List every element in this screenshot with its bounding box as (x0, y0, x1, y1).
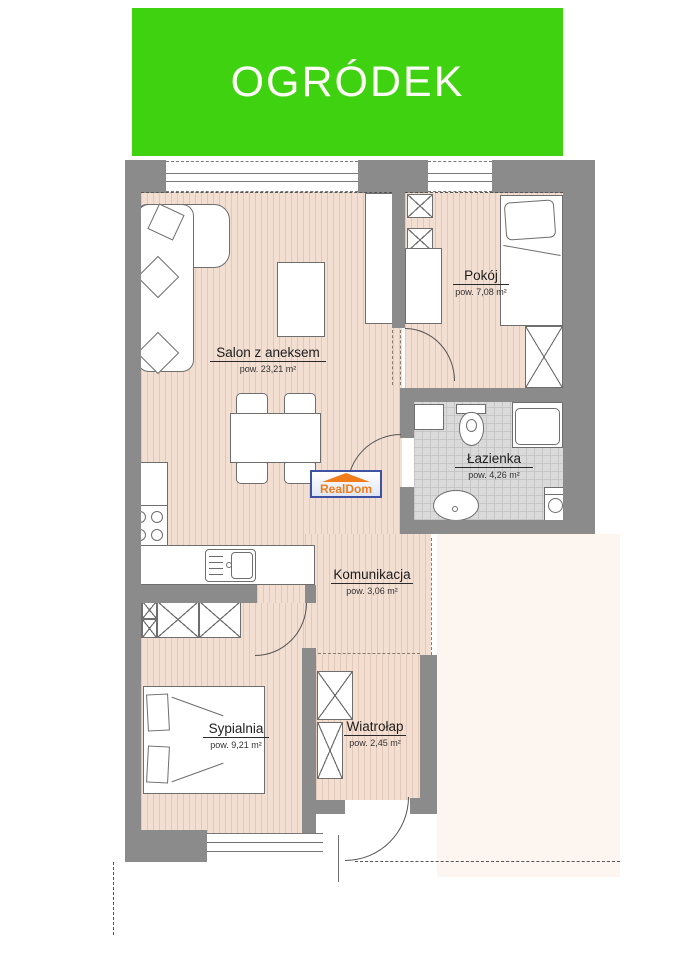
label-divider (455, 467, 533, 468)
window-sypialnia (207, 833, 323, 852)
wall-top-middle (358, 160, 428, 193)
room-label-pokoj: Pokój pow. 7,08 m² (406, 268, 556, 297)
door-arc-entrance (345, 797, 409, 861)
dining-chair (236, 393, 268, 415)
room-name: Łazienka (419, 451, 569, 466)
floor-plan-page: OGRÓDEK (0, 0, 678, 960)
room-label-salon: Salon z aneksem pow. 23,21 m² (193, 345, 343, 374)
boundary-komunikacja-right (431, 538, 432, 655)
room-name: Pokój (406, 268, 556, 283)
room-area: pow. 23,21 m² (193, 364, 343, 374)
realdom-logo: RealDom (310, 470, 382, 498)
garden-boundary-vertical (113, 862, 114, 935)
opening-salon-korytarz (392, 330, 401, 385)
dining-table (230, 413, 321, 463)
wall-lazienka-left-upper (400, 388, 414, 438)
boundary-komunikacja-wiatrolap (318, 653, 420, 654)
wardrobe (525, 326, 563, 388)
room-name: Komunikacja (297, 567, 447, 582)
room-area: pow. 2,45 m² (300, 738, 450, 748)
wall-salon-pokoj (392, 193, 405, 328)
wall-lazienka-top (400, 388, 595, 402)
bathtub-inner (515, 408, 560, 445)
wardrobe-cell (142, 619, 157, 638)
wall-entrance-left (302, 800, 345, 814)
room-area: pow. 9,21 m² (161, 740, 311, 750)
outside-area (437, 534, 620, 877)
room-label-lazienka: Łazienka pow. 4,26 m² (419, 451, 569, 480)
window-frame (166, 173, 358, 182)
boundary-pokoj-window (405, 192, 563, 193)
sink-drainer-line (209, 568, 223, 569)
garden-banner-text: OGRÓDEK (231, 58, 465, 107)
sink-drain (452, 506, 458, 512)
window-pokoj (428, 161, 492, 192)
sink-basin (231, 552, 253, 579)
sink-drainer-line (209, 562, 223, 563)
stove-burner (151, 511, 163, 523)
boundary-salon-window (141, 192, 392, 193)
dining-chair (284, 393, 316, 415)
sink-drainer-line (209, 556, 223, 557)
wall-lazienka-left-lower (400, 487, 414, 534)
wardrobe (199, 601, 241, 638)
room-label-wiatrolap: Wiatrołap pow. 2,45 m² (300, 719, 450, 748)
wall-entrance-right (410, 798, 437, 814)
wall-exterior-right (563, 193, 595, 534)
label-divider (344, 735, 406, 736)
tv-cabinet (365, 193, 393, 324)
label-divider (210, 361, 326, 362)
terrace-divider-line (338, 835, 339, 882)
wardrobe-cell (142, 601, 157, 619)
wall-top-right-corner (492, 160, 595, 193)
label-divider (331, 583, 413, 584)
realdom-roof-icon (322, 473, 370, 482)
room-area: pow. 7,08 m² (406, 287, 556, 297)
dining-chair (236, 462, 268, 484)
washer-drum (548, 498, 563, 513)
floor-komunikacja (305, 534, 431, 660)
room-area: pow. 4,26 m² (419, 470, 569, 480)
toilet-seat-detail (466, 419, 477, 432)
room-area: pow. 3,06 m² (297, 586, 447, 596)
window-frame (428, 173, 492, 182)
wall-lazienka-bottom (400, 520, 595, 534)
garden-banner: OGRÓDEK (132, 8, 563, 156)
garden-boundary-horizontal (355, 861, 620, 862)
stove-burner (151, 529, 163, 541)
hall-wardrobe (317, 671, 353, 720)
label-divider (453, 284, 509, 285)
label-divider (203, 737, 269, 738)
room-name: Sypialnia (161, 721, 311, 736)
bath-cabinet (414, 404, 444, 430)
room-label-komunikacja: Komunikacja pow. 3,06 m² (297, 567, 447, 596)
wardrobe (157, 601, 199, 638)
shelf-unit (407, 194, 433, 218)
window-frame (207, 842, 323, 843)
bed-pillow (146, 745, 170, 783)
room-label-sypialnia: Sypialnia pow. 9,21 m² (161, 721, 311, 750)
window-salon (166, 161, 358, 192)
sink-drainer-line (209, 574, 223, 575)
realdom-logo-text: RealDom (320, 483, 372, 495)
coffee-table (277, 262, 325, 337)
bed-pillow (504, 199, 557, 240)
wall-sypialnia-top-left (125, 585, 257, 603)
room-name: Salon z aneksem (193, 345, 343, 360)
sink-faucet (226, 562, 232, 568)
room-name: Wiatrołap (300, 719, 450, 734)
wall-exterior-left (125, 160, 141, 862)
wall-bottom-left-corner (125, 830, 207, 862)
